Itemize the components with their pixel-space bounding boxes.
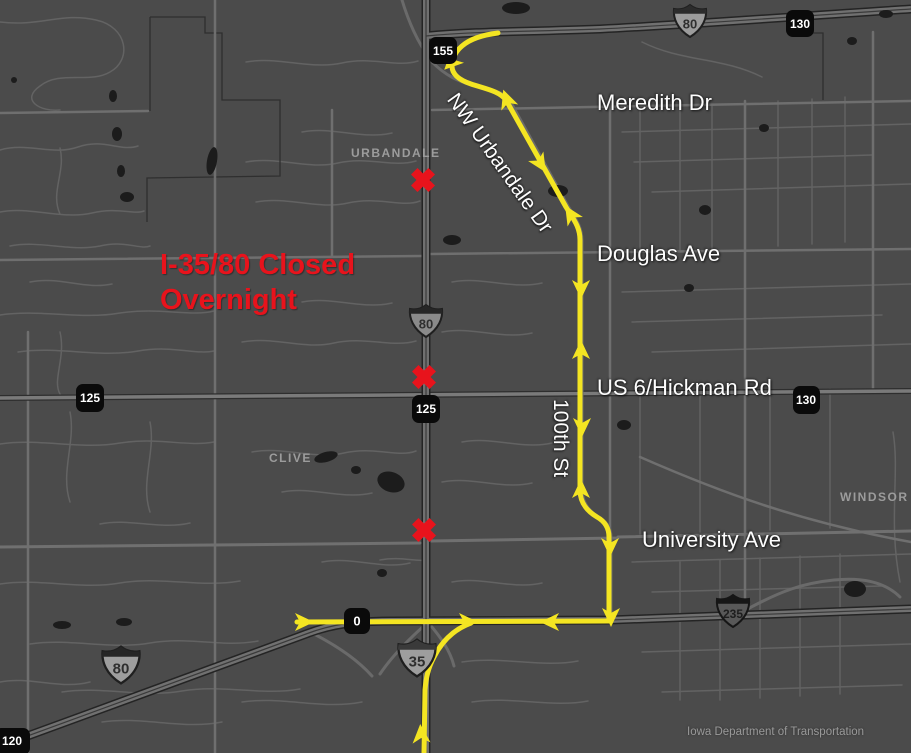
marker-number-130-right: 130	[796, 393, 816, 407]
marker-number-130-top: 130	[790, 17, 810, 31]
street-label-hickman: US 6/Hickman Rd	[597, 375, 772, 401]
marker-number-155: 155	[433, 44, 453, 58]
street-label-douglas: Douglas Ave	[597, 241, 720, 267]
shield-number-i235: 235	[723, 607, 743, 621]
marker-number-125-left: 125	[80, 391, 100, 405]
shield-number-i80-southwest: 80	[113, 661, 130, 678]
street-label-university: University Ave	[642, 527, 781, 553]
road-closure-map: I-35/80 Closed Overnight Meredith Dr NW …	[0, 0, 911, 753]
marker-number-125-mid: 125	[416, 402, 436, 416]
marker-number-0: 0	[353, 614, 360, 629]
marker-number-120: 120	[2, 734, 22, 748]
closure-warning-text: I-35/80 Closed Overnight	[160, 248, 490, 318]
attribution-text: Iowa Department of Transportation	[687, 726, 864, 738]
city-label-urbandale: URBANDALE	[351, 146, 441, 160]
shield-number-i35: 35	[409, 654, 426, 671]
shield-number-i80-top: 80	[683, 17, 697, 32]
street-label-100th-st: 100th St	[548, 399, 572, 477]
city-label-windsor-heights: WINDSOR H	[840, 490, 911, 504]
city-label-clive: CLIVE	[269, 451, 312, 465]
shield-number-i80-mid: 80	[419, 317, 433, 332]
street-label-meredith: Meredith Dr	[597, 90, 712, 116]
